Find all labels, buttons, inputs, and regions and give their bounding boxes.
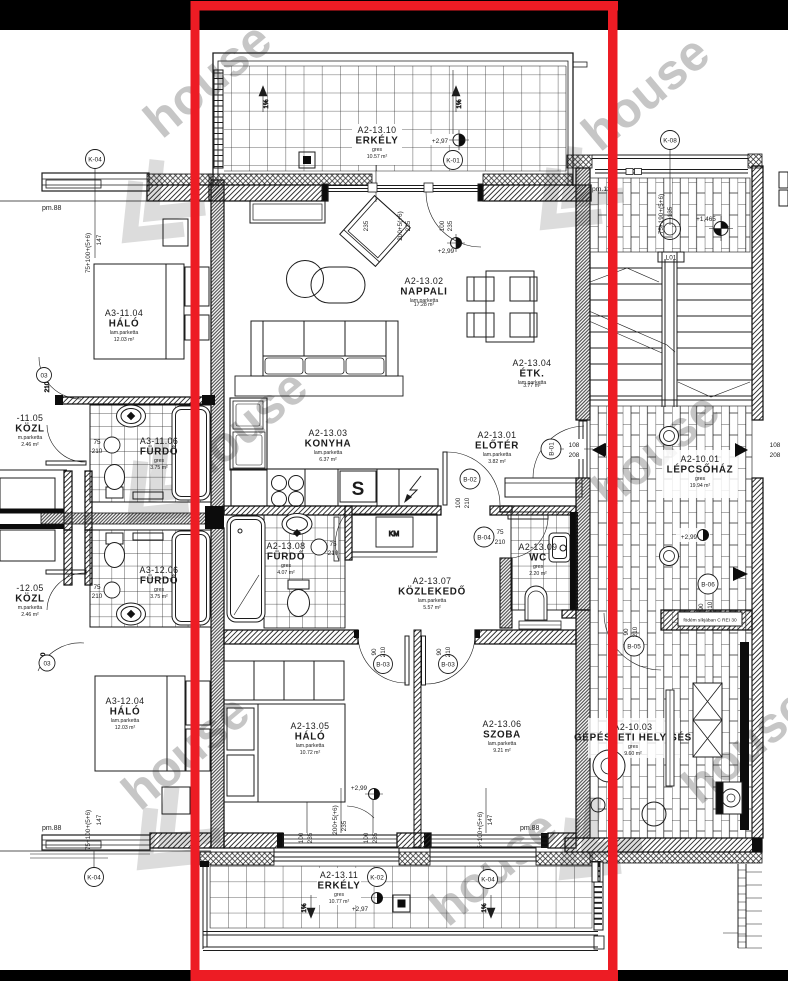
svg-text:03: 03 xyxy=(43,661,51,668)
svg-text:födém síkjában C REI 30: födém síkjában C REI 30 xyxy=(683,618,737,624)
svg-text:4.07 m²: 4.07 m² xyxy=(277,570,295,576)
svg-text:3.75 m²: 3.75 m² xyxy=(150,465,168,471)
svg-text:A3-12.04: A3-12.04 xyxy=(106,696,145,706)
svg-text:100: 100 xyxy=(439,220,446,231)
svg-text:75+100+(5+6): 75+100+(5+6) xyxy=(477,812,484,852)
svg-text:B-05: B-05 xyxy=(627,644,641,651)
svg-text:10.77 m²: 10.77 m² xyxy=(329,899,350,905)
svg-text:gres: gres xyxy=(154,587,164,593)
svg-text:lam.parketta: lam.parketta xyxy=(110,330,139,336)
svg-text:235: 235 xyxy=(363,220,370,231)
svg-text:210: 210 xyxy=(92,593,103,600)
svg-text:gres: gres xyxy=(281,563,291,569)
svg-text:K-04: K-04 xyxy=(481,877,495,884)
svg-text:pm.88: pm.88 xyxy=(520,825,540,832)
svg-text:19.94 m²: 19.94 m² xyxy=(690,483,711,489)
svg-text:A2-13.03: A2-13.03 xyxy=(309,428,348,438)
svg-text:K-02: K-02 xyxy=(370,875,384,882)
svg-text:WC: WC xyxy=(529,553,547,564)
svg-text:K-08: K-08 xyxy=(663,138,677,145)
svg-text:147: 147 xyxy=(487,814,494,825)
svg-text:5.57 m²: 5.57 m² xyxy=(423,605,441,611)
svg-text:lam.parketta: lam.parketta xyxy=(111,718,140,724)
svg-text:B-04: B-04 xyxy=(477,535,491,542)
svg-text:A2-13.06: A2-13.06 xyxy=(483,719,522,729)
svg-text:200+5(+6): 200+5(+6) xyxy=(332,805,339,835)
svg-text:235: 235 xyxy=(372,832,379,843)
svg-text:210: 210 xyxy=(445,646,452,657)
svg-text:135: 135 xyxy=(667,206,674,217)
svg-text:147: 147 xyxy=(96,814,103,825)
svg-text:1%: 1% xyxy=(456,99,463,109)
svg-text:210: 210 xyxy=(464,497,471,508)
svg-text:+2,99: +2,99 xyxy=(681,534,698,541)
svg-text:A2-10.03: A2-10.03 xyxy=(614,722,653,732)
svg-text:75+100+(5+6): 75+100+(5+6) xyxy=(85,233,92,273)
svg-text:1%: 1% xyxy=(481,903,488,913)
svg-text:210: 210 xyxy=(44,381,51,392)
svg-text:A2-13.11: A2-13.11 xyxy=(320,870,358,880)
svg-text:HÁLÓ: HÁLÓ xyxy=(295,731,326,743)
svg-text:9.21 m²: 9.21 m² xyxy=(493,748,511,754)
svg-text:gres: gres xyxy=(154,458,164,464)
svg-text:B-06: B-06 xyxy=(701,582,715,589)
svg-text:100: 100 xyxy=(363,832,370,843)
svg-text:03: 03 xyxy=(40,373,48,380)
svg-text:+2,99: +2,99 xyxy=(351,785,368,792)
svg-text:LÉPCSŐHÁZ: LÉPCSŐHÁZ xyxy=(667,464,734,476)
svg-text:210: 210 xyxy=(92,448,103,455)
svg-text:75+100+(5+6): 75+100+(5+6) xyxy=(85,810,92,850)
svg-text:100: 100 xyxy=(298,832,305,843)
svg-text:gres: gres xyxy=(334,892,344,898)
svg-text:-12.05: -12.05 xyxy=(16,583,43,593)
svg-text:210: 210 xyxy=(495,539,506,546)
svg-text:147: 147 xyxy=(96,234,103,245)
svg-text:SZOBA: SZOBA xyxy=(483,730,521,741)
svg-text:210: 210 xyxy=(380,646,387,657)
svg-text:gres: gres xyxy=(628,744,638,750)
svg-text:2.46 m²: 2.46 m² xyxy=(21,442,39,448)
svg-text:A2-13.01: A2-13.01 xyxy=(478,430,517,440)
svg-text:K-04: K-04 xyxy=(88,157,102,164)
svg-text:A2-13.10: A2-13.10 xyxy=(358,125,397,135)
svg-text:B-02: B-02 xyxy=(463,477,477,484)
svg-text:lam.parketta: lam.parketta xyxy=(483,452,512,458)
svg-text:lam.parketta: lam.parketta xyxy=(488,741,517,747)
svg-text:lam.parketta: lam.parketta xyxy=(296,743,325,749)
svg-text:90: 90 xyxy=(698,603,705,611)
svg-text:90: 90 xyxy=(436,648,443,656)
svg-text:90: 90 xyxy=(623,628,630,636)
svg-text:A3-11.06: A3-11.06 xyxy=(140,436,178,446)
svg-text:lam.parketta: lam.parketta xyxy=(314,450,343,456)
svg-text:KONYHA: KONYHA xyxy=(305,439,352,450)
svg-text:208: 208 xyxy=(569,452,580,459)
svg-text:A3-11.04: A3-11.04 xyxy=(105,308,143,318)
svg-text:A3-12.06: A3-12.06 xyxy=(140,565,179,575)
svg-text:100: 100 xyxy=(455,497,462,508)
svg-text:108: 108 xyxy=(569,442,580,449)
svg-text:A2-13.08: A2-13.08 xyxy=(267,541,306,551)
svg-text:210: 210 xyxy=(632,626,639,637)
svg-text:2.46 m²: 2.46 m² xyxy=(21,612,39,618)
svg-text:90: 90 xyxy=(371,648,378,656)
svg-text:pm.88: pm.88 xyxy=(42,825,62,832)
svg-text:210: 210 xyxy=(707,601,714,612)
svg-text:2.20 m²: 2.20 m² xyxy=(529,571,547,577)
svg-text:10.57 m²: 10.57 m² xyxy=(367,154,388,160)
svg-text:gres: gres xyxy=(533,564,543,570)
svg-text:gres: gres xyxy=(372,147,382,153)
svg-text:m.parketta: m.parketta xyxy=(18,605,43,611)
svg-text:S: S xyxy=(352,479,365,500)
svg-text:210: 210 xyxy=(328,550,339,557)
svg-text:A2-13.04: A2-13.04 xyxy=(513,358,552,368)
svg-text:108: 108 xyxy=(770,442,781,449)
svg-text:FÜRDŐ: FÜRDŐ xyxy=(140,446,178,458)
svg-text:KÖZL: KÖZL xyxy=(15,594,44,605)
svg-text:A2-13.09: A2-13.09 xyxy=(519,542,558,552)
svg-text:L01: L01 xyxy=(666,255,677,262)
svg-text:75: 75 xyxy=(496,529,504,536)
svg-text:ERKÉLY: ERKÉLY xyxy=(355,135,398,147)
svg-text:+2,97: +2,97 xyxy=(352,906,369,913)
svg-text:KM: KM xyxy=(389,531,400,538)
svg-text:75: 75 xyxy=(93,584,101,591)
svg-text:1%: 1% xyxy=(301,903,308,913)
svg-text:pm.88: pm.88 xyxy=(42,205,62,212)
svg-text:K-04: K-04 xyxy=(87,875,101,882)
svg-text:A2-13.07: A2-13.07 xyxy=(413,576,452,586)
svg-text:KÖZLEKEDŐ: KÖZLEKEDŐ xyxy=(398,586,466,598)
svg-text:m.parketta: m.parketta xyxy=(18,435,43,441)
svg-text:ERKÉLY: ERKÉLY xyxy=(317,880,360,892)
svg-text:3.82 m²: 3.82 m² xyxy=(488,459,506,465)
svg-text:17.28 m²: 17.28 m² xyxy=(414,302,435,308)
svg-text:9.60 m²: 9.60 m² xyxy=(624,751,642,757)
svg-text:6.37 m²: 6.37 m² xyxy=(319,457,337,463)
svg-text:75: 75 xyxy=(93,439,101,446)
svg-text:lam.parketta: lam.parketta xyxy=(418,598,447,604)
svg-text:3.77 m²: 3.77 m² xyxy=(523,383,541,389)
svg-text:B-03: B-03 xyxy=(441,662,455,669)
svg-text:FÜRDŐ: FÜRDŐ xyxy=(267,551,305,563)
svg-text:NAPPALI: NAPPALI xyxy=(400,287,447,298)
svg-text:+2,97: +2,97 xyxy=(432,138,449,145)
svg-text:235: 235 xyxy=(307,832,314,843)
svg-text:A2-10.01: A2-10.01 xyxy=(681,454,720,464)
svg-text:gres: gres xyxy=(695,476,705,482)
svg-text:12.03 m²: 12.03 m² xyxy=(115,725,136,731)
svg-text:75: 75 xyxy=(329,541,337,548)
svg-text:208: 208 xyxy=(770,452,781,459)
svg-text:ELŐTÉR: ELŐTÉR xyxy=(475,440,519,452)
svg-text:1%: 1% xyxy=(263,99,270,109)
svg-text:HÁLÓ: HÁLÓ xyxy=(109,318,140,330)
svg-text:KÖZL: KÖZL xyxy=(15,424,44,435)
svg-text:B-01: B-01 xyxy=(549,442,556,456)
svg-text:3.75 m²: 3.75 m² xyxy=(150,594,168,600)
svg-text:A2-13.05: A2-13.05 xyxy=(291,721,330,731)
svg-text:235: 235 xyxy=(341,820,348,831)
svg-text:K-01: K-01 xyxy=(446,158,460,165)
svg-text:HÁLÓ: HÁLÓ xyxy=(110,706,141,718)
svg-text:+2,99: +2,99 xyxy=(438,248,455,255)
svg-text:12.03 m²: 12.03 m² xyxy=(114,337,135,343)
svg-text:+1,465: +1,465 xyxy=(696,216,716,223)
svg-text:A2-13.02: A2-13.02 xyxy=(405,276,444,286)
svg-text:-11.05: -11.05 xyxy=(17,413,44,423)
svg-text:B-03: B-03 xyxy=(376,662,390,669)
svg-text:10.72 m²: 10.72 m² xyxy=(300,750,321,756)
svg-text:ÉTK.: ÉTK. xyxy=(519,368,544,380)
svg-text:235: 235 xyxy=(447,220,454,231)
svg-text:FÜRDŐ: FÜRDŐ xyxy=(140,575,178,587)
